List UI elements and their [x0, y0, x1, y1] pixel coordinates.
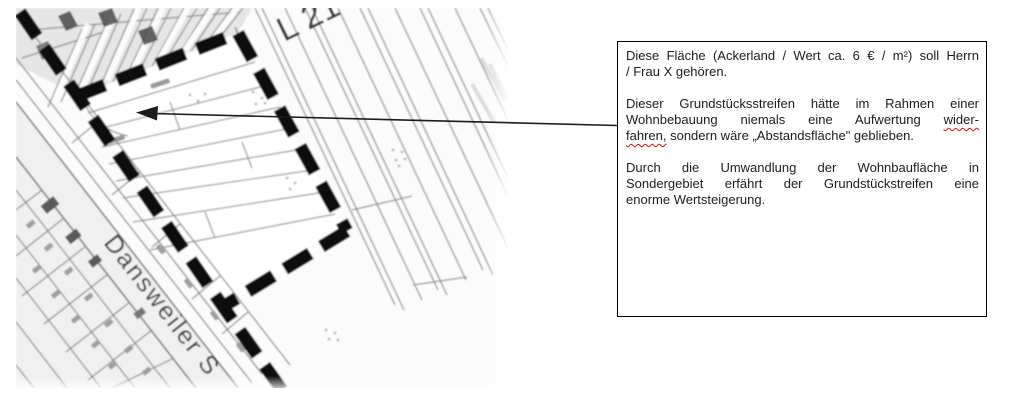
- text-segment: Dieser Grundstücksstreifen hätte im Rahm…: [626, 96, 979, 111]
- text-segment: Durch die Umwandlung der Wohnbaufläche i…: [626, 160, 979, 175]
- text-segment: / Frau X gehören.: [626, 64, 727, 79]
- note-line: Wohnbebauung niemals eine Aufwertung wid…: [626, 112, 979, 128]
- note-paragraph: Durch die Umwandlung der Wohnbaufläche i…: [626, 160, 979, 208]
- misspelled-word: fahren,: [626, 128, 666, 143]
- note-paragraph: Dieser Grundstücksstreifen hätte im Rahm…: [626, 96, 979, 144]
- note-text: Diese Fläche (Ackerland / Wert ca. 6 € /…: [626, 48, 979, 208]
- text-segment: Sondergebiet erfährt der Grundstückstrei…: [626, 176, 979, 191]
- map-bottom-fade: [16, 376, 508, 392]
- note-line: / Frau X gehören.: [626, 64, 979, 80]
- map-right-fade: [486, 8, 510, 388]
- text-segment: enorme Wertsteigerung.: [626, 192, 765, 207]
- note-line: Sondergebiet erfährt der Grundstückstrei…: [626, 176, 979, 192]
- note-line: fahren, sondern wäre „Abstandsfläche" ge…: [626, 128, 979, 144]
- note-line: Durch die Umwandlung der Wohnbaufläche i…: [626, 160, 979, 176]
- text-segment: Diese Fläche (Ackerland / Wert ca. 6 € /…: [626, 48, 979, 63]
- text-segment: sondern wäre „Abstandsfläche" geblieben.: [666, 128, 913, 143]
- note-line: enorme Wertsteigerung.: [626, 192, 979, 208]
- note-line: Diese Fläche (Ackerland / Wert ca. 6 € /…: [626, 48, 979, 64]
- note-paragraph: Diese Fläche (Ackerland / Wert ca. 6 € /…: [626, 48, 979, 80]
- note-line: Dieser Grundstücksstreifen hätte im Rahm…: [626, 96, 979, 112]
- annotation-box: Diese Fläche (Ackerland / Wert ca. 6 € /…: [617, 41, 987, 317]
- misspelled-word: wider-: [944, 112, 979, 127]
- page: L 21 Dansweiler S Dies: [0, 0, 1023, 406]
- text-segment: Wohnbebauung niemals eine Aufwertung: [626, 112, 944, 127]
